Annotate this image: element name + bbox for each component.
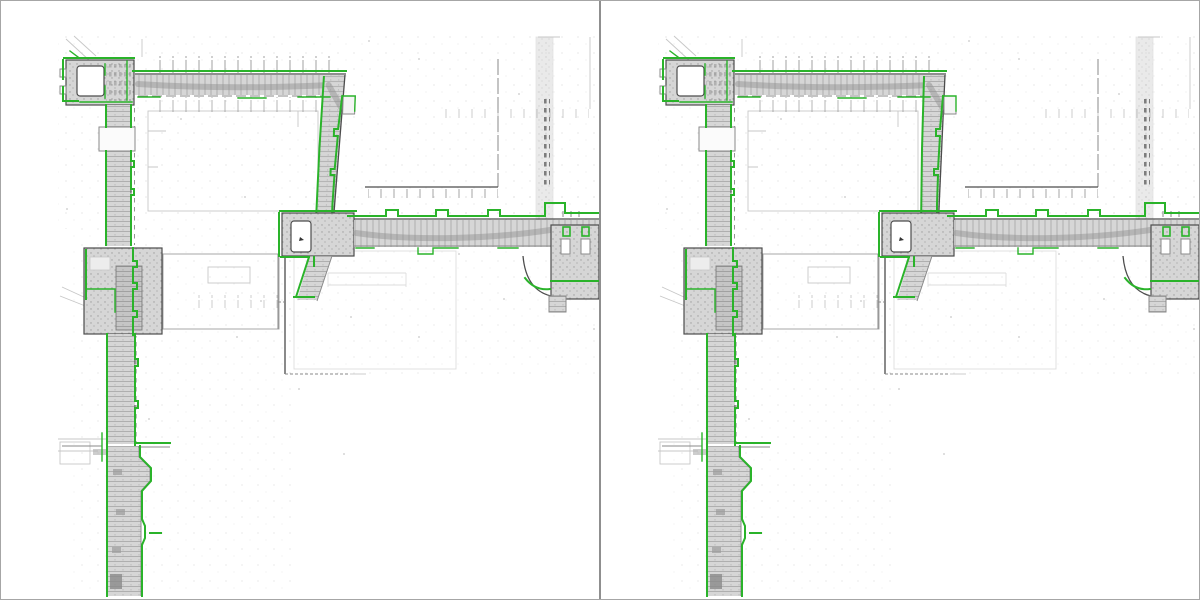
figure-frame <box>0 0 1200 600</box>
elevator-box <box>891 221 911 252</box>
map-canvas-left <box>1 1 599 599</box>
top-corridor <box>135 56 346 112</box>
map-panel-right <box>601 1 1199 599</box>
vestibule <box>699 127 735 151</box>
map-canvas-right <box>601 1 1199 599</box>
map-panel-left <box>1 1 599 599</box>
right-end-block <box>551 225 599 299</box>
floorplan-map <box>601 1 1199 599</box>
top-left-room <box>660 60 734 105</box>
inner-room <box>677 66 704 96</box>
right-end-block <box>1151 225 1199 299</box>
elevator-box <box>291 221 311 252</box>
floorplan-map <box>1 1 599 599</box>
top-corridor <box>735 56 946 112</box>
inner-room <box>77 66 104 96</box>
top-left-room <box>60 60 134 105</box>
vestibule <box>99 127 135 151</box>
